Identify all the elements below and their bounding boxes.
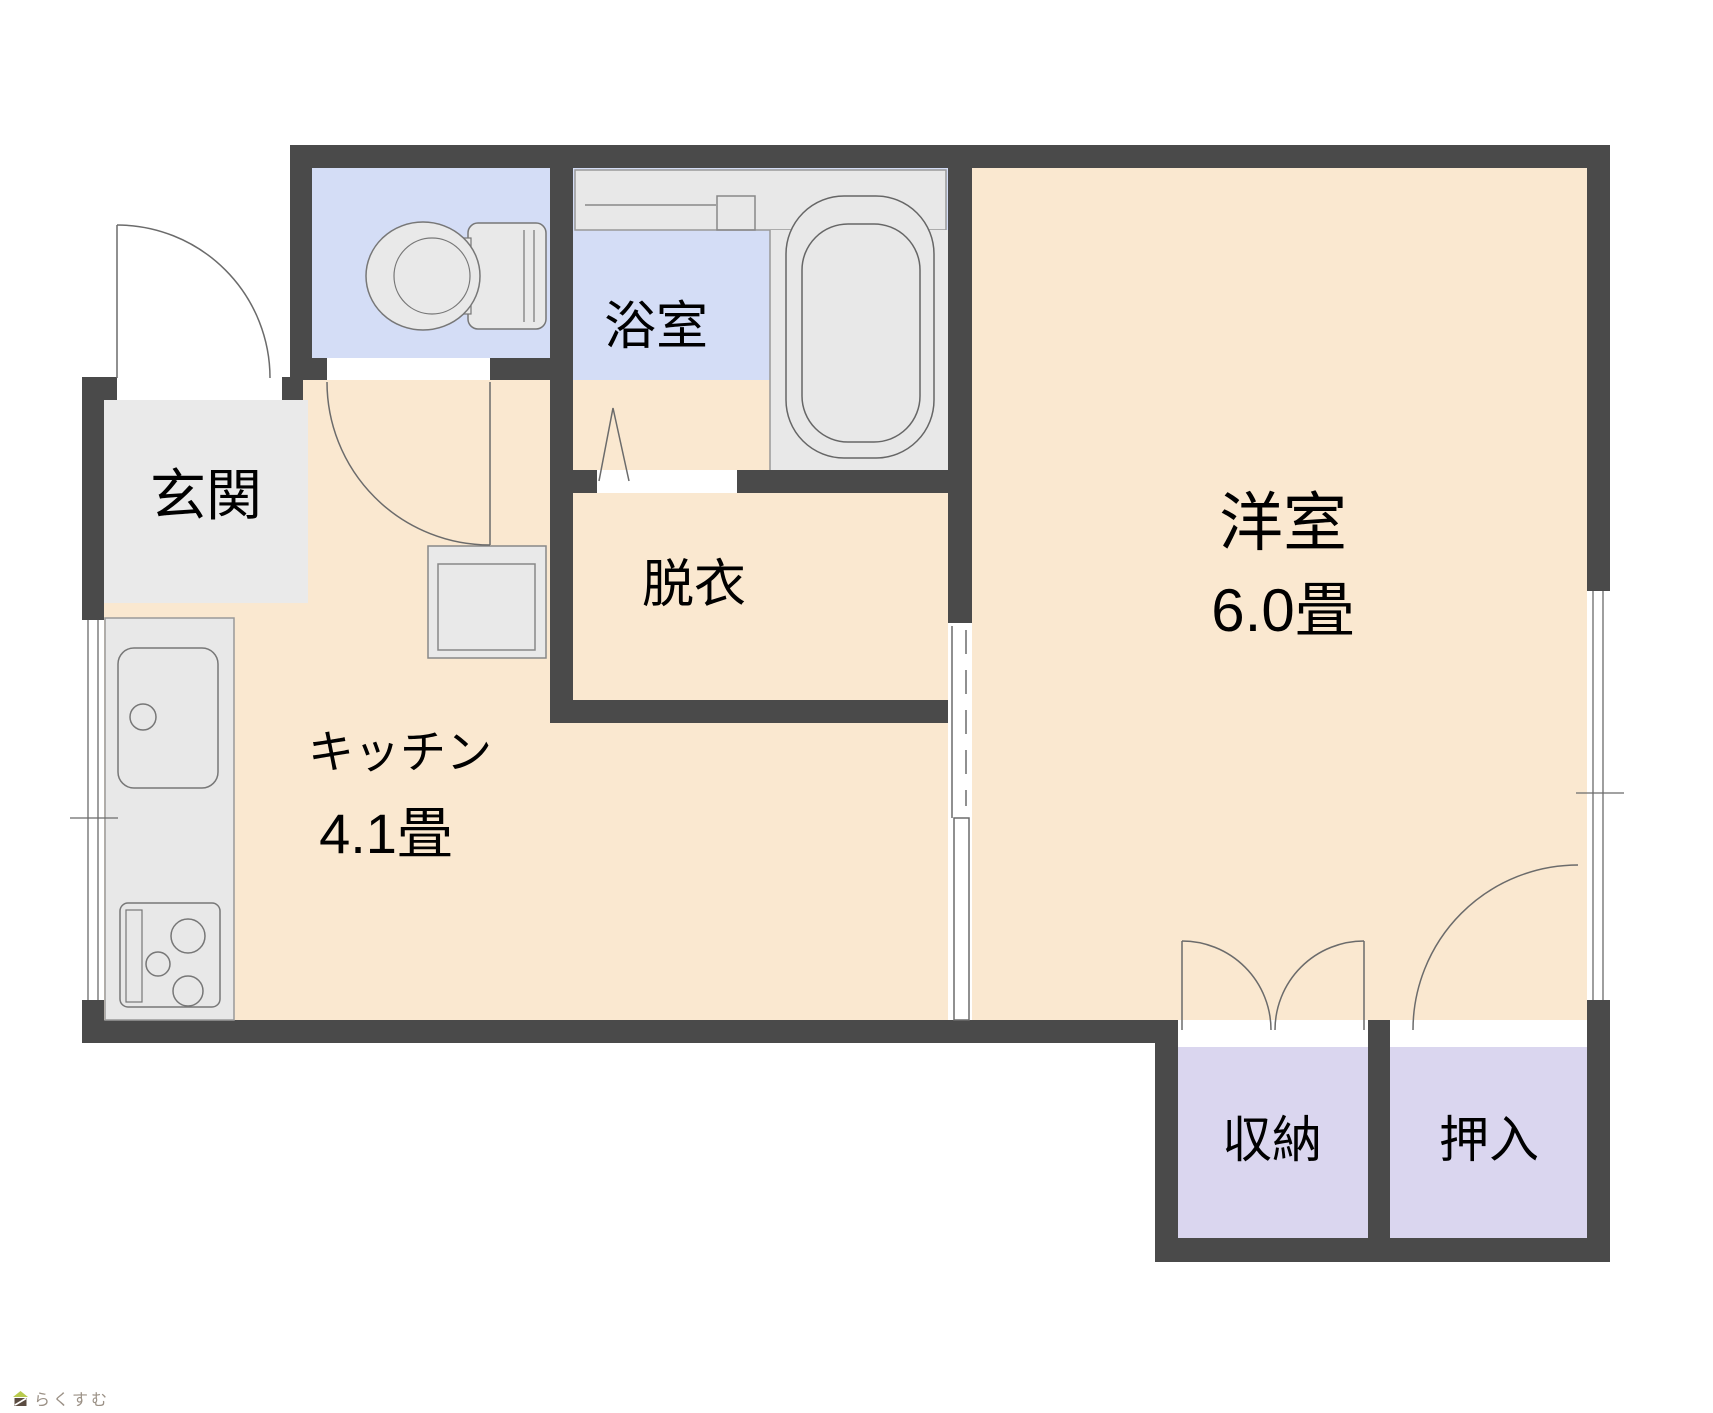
door-arc bbox=[1413, 865, 1578, 1030]
double-door-arcs bbox=[1182, 941, 1364, 1030]
toilet-door-arc bbox=[327, 382, 490, 545]
datsui-label: 脱衣 bbox=[642, 559, 746, 611]
western-room-label: 洋室 bbox=[1219, 491, 1347, 555]
bathtub-icon bbox=[770, 196, 948, 470]
kitchen-label: キッチン bbox=[308, 729, 492, 775]
house-logo-icon bbox=[13, 1391, 28, 1406]
washing-machine-pan-icon bbox=[428, 546, 546, 658]
shuno-label: 収納 bbox=[1222, 1115, 1322, 1165]
fixtures-overlay bbox=[0, 0, 1713, 1413]
sliding-door-icon bbox=[952, 626, 969, 1020]
window-icon bbox=[1576, 591, 1624, 1000]
toilet-icon bbox=[366, 222, 546, 330]
western-room-size-label: 6.0畳 bbox=[1211, 581, 1354, 641]
genkan-label: 玄関 bbox=[150, 468, 262, 524]
kitchen-size-label: 4.1畳 bbox=[319, 806, 453, 862]
floor-plan: 玄関 浴室 脱衣 キッチン 4.1畳 洋室 6.0畳 収納 押入 らくすむ bbox=[0, 0, 1713, 1413]
folding-door-icon bbox=[599, 408, 629, 481]
logo-text: らくすむ bbox=[34, 1386, 110, 1410]
bath-label: 浴室 bbox=[604, 301, 708, 353]
rakusumu-logo: らくすむ bbox=[13, 1386, 110, 1410]
entry-door-arc bbox=[117, 225, 270, 378]
oshiire-label: 押入 bbox=[1439, 1115, 1539, 1165]
